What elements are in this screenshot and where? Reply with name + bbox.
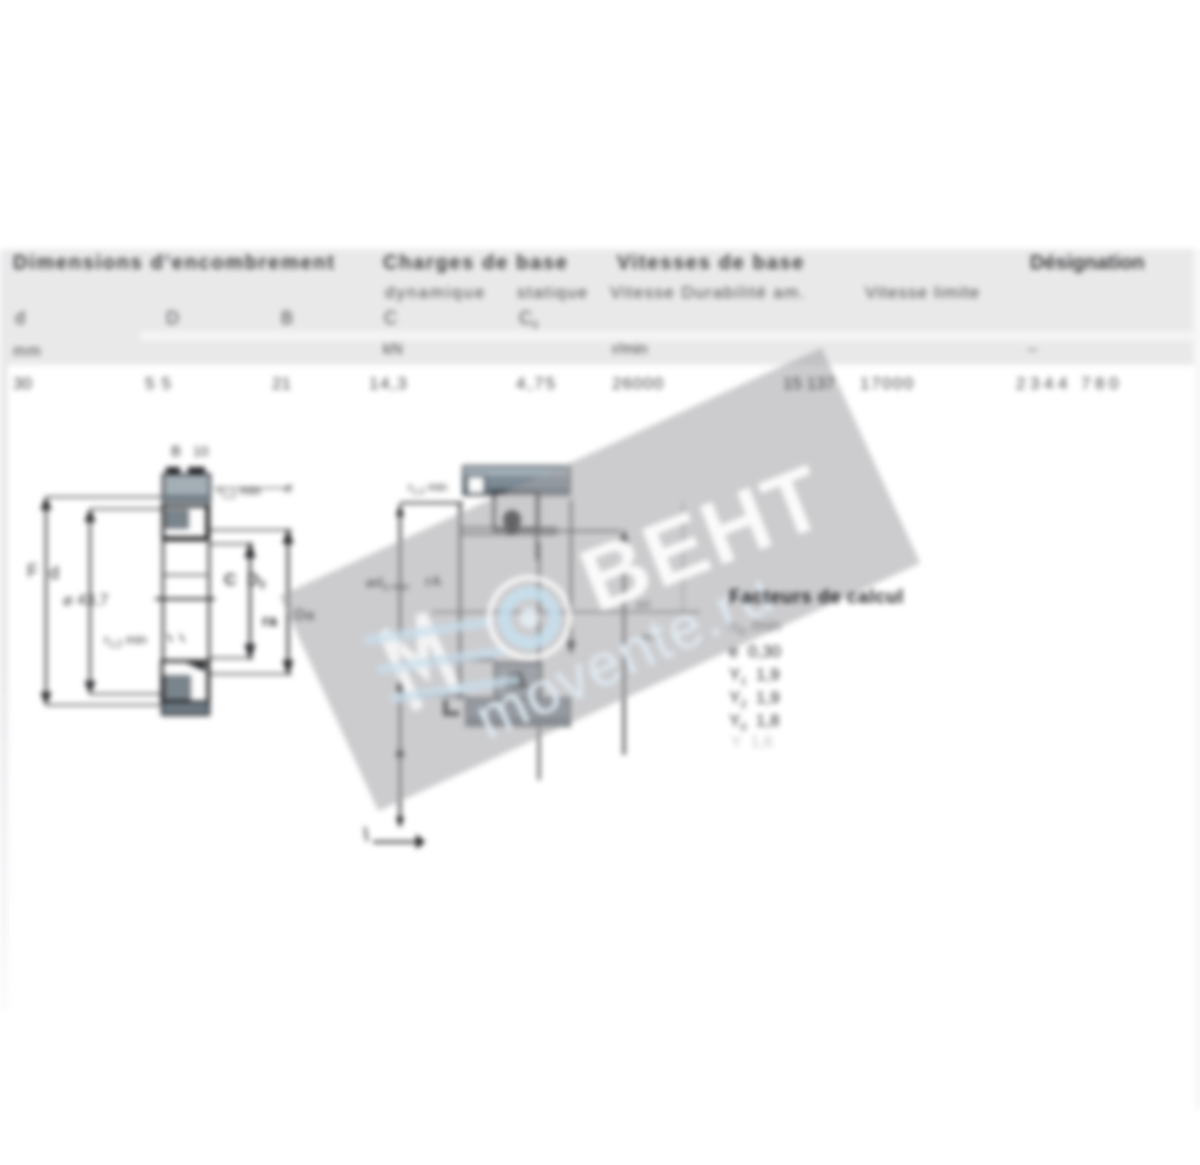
svg-text:⌀ 43,7: ⌀ 43,7 (63, 592, 108, 609)
svg-text:ra: ra (262, 613, 277, 630)
svg-text:d: d (49, 563, 59, 583)
svg-text:F: F (27, 561, 38, 581)
svg-text:r1,2 min: r1,2 min (218, 483, 261, 501)
svg-text:10: 10 (193, 443, 209, 459)
svg-text:D2: D2 (247, 570, 265, 591)
svg-text:r1,2 min: r1,2 min (104, 632, 147, 650)
svg-text:rf: rf (284, 482, 292, 496)
svg-text:B: B (171, 443, 181, 460)
svg-text:C: C (224, 570, 236, 589)
svg-text:r1,2 min: r1,2 min (408, 480, 447, 496)
